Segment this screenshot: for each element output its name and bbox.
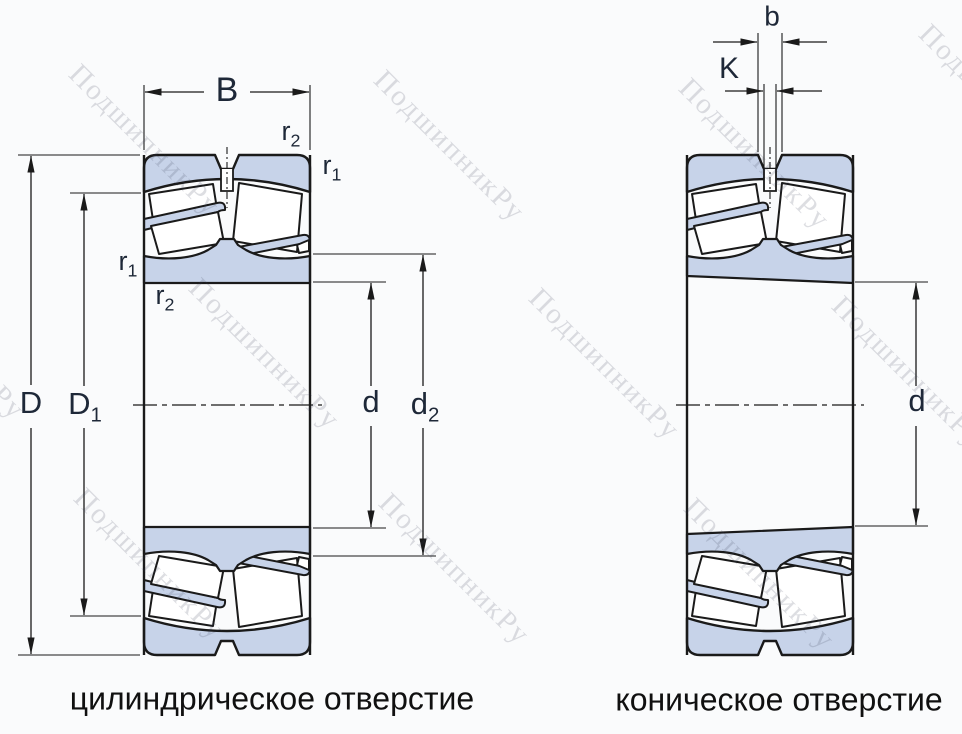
dim-label-r2-left: r2 bbox=[156, 282, 175, 314]
bearing-drawing-page: B r2 r1 r1 r2 D D1 d d2 b K d цилиндриче… bbox=[0, 0, 962, 734]
right-bearing bbox=[676, 147, 864, 655]
dim-label-D: D bbox=[20, 387, 42, 425]
dim-label-B: B bbox=[216, 73, 239, 113]
dim-label-r1-right: r1 bbox=[323, 152, 342, 184]
dim-label-d-right: d bbox=[908, 385, 925, 423]
dim-label-r2-top: r2 bbox=[282, 118, 301, 150]
dim-label-K: K bbox=[719, 54, 739, 90]
right-view-caption: коническое отверстие bbox=[615, 682, 942, 719]
dim-label-d: d bbox=[362, 386, 379, 424]
dim-label-r1-left: r1 bbox=[119, 248, 138, 280]
diagram-canvas bbox=[0, 0, 962, 734]
dim-label-d2: d2 bbox=[411, 388, 440, 426]
left-view-caption: цилиндрическое отверстие bbox=[70, 681, 474, 718]
dim-label-b: b bbox=[764, 2, 780, 35]
dim-label-D1: D1 bbox=[68, 388, 102, 426]
left-bearing bbox=[133, 147, 322, 655]
